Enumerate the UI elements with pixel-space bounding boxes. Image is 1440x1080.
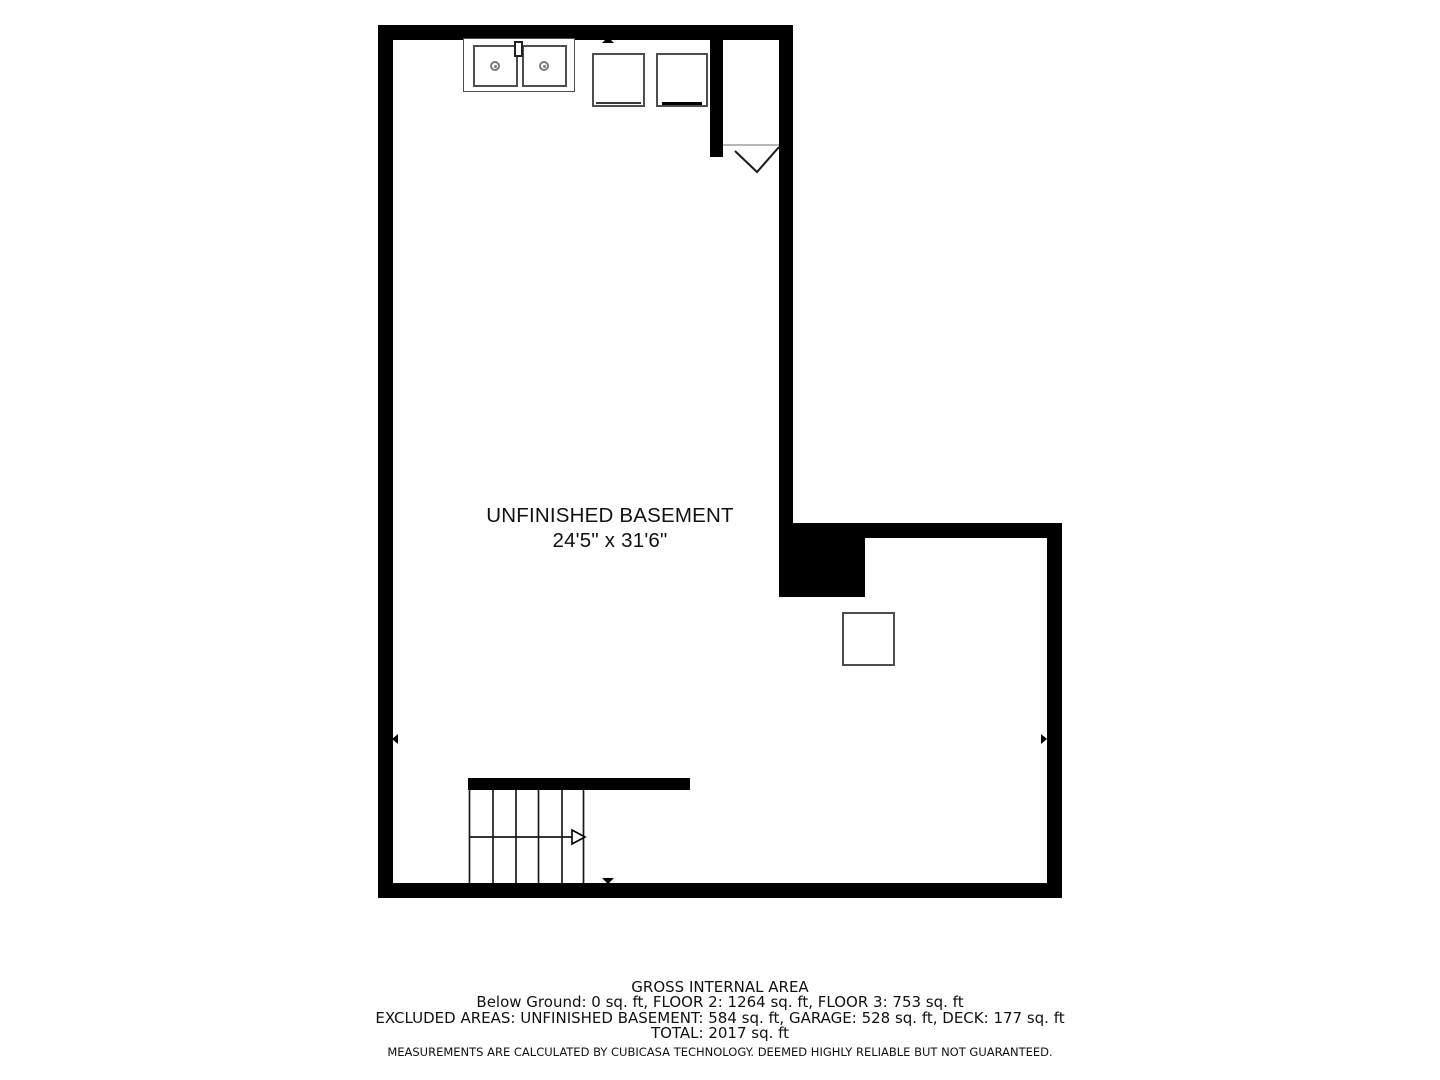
appliance-square-icon [592,53,645,107]
room-dimensions: 24'5" x 31'6" [430,528,790,553]
room-label-group: UNFINISHED BASEMENT 24'5" x 31'6" [430,503,790,553]
marker-arrow-left-icon [392,734,398,744]
drain-icon [490,61,500,71]
appliance-square-icon [842,612,895,666]
wall-upper-right [779,25,793,523]
wall-closet-left [710,25,723,157]
faucet-icon [514,41,523,57]
marker-arrow-down-icon [602,878,614,884]
wall-top [378,25,793,40]
drain-icon [539,61,549,71]
marker-arrow-right-icon [1041,734,1047,744]
stairs-header-wall [468,778,690,790]
room-name: UNFINISHED BASEMENT [430,503,790,528]
marker-arrow-up-icon [602,37,614,43]
wall-left [378,25,393,898]
area-summary: GROSS INTERNAL AREA Below Ground: 0 sq. … [0,980,1440,1060]
disclaimer-line: MEASUREMENTS ARE CALCULATED BY CUBICASA … [0,1045,1440,1060]
appliance-square-icon [656,53,708,107]
appliance-detail-line [662,102,702,105]
total-line: TOTAL: 2017 sq. ft [0,1026,1440,1041]
floorplan-page: UNFINISHED BASEMENT 24'5" x 31'6" GROSS … [0,0,1440,1080]
wall-bottom [378,883,1062,898]
wall-right [1047,523,1062,898]
door-swing-icon [718,144,782,176]
staircase-with-up-arrow-icon [468,790,590,883]
chimney-block [779,523,865,597]
appliance-detail-line [596,102,641,104]
